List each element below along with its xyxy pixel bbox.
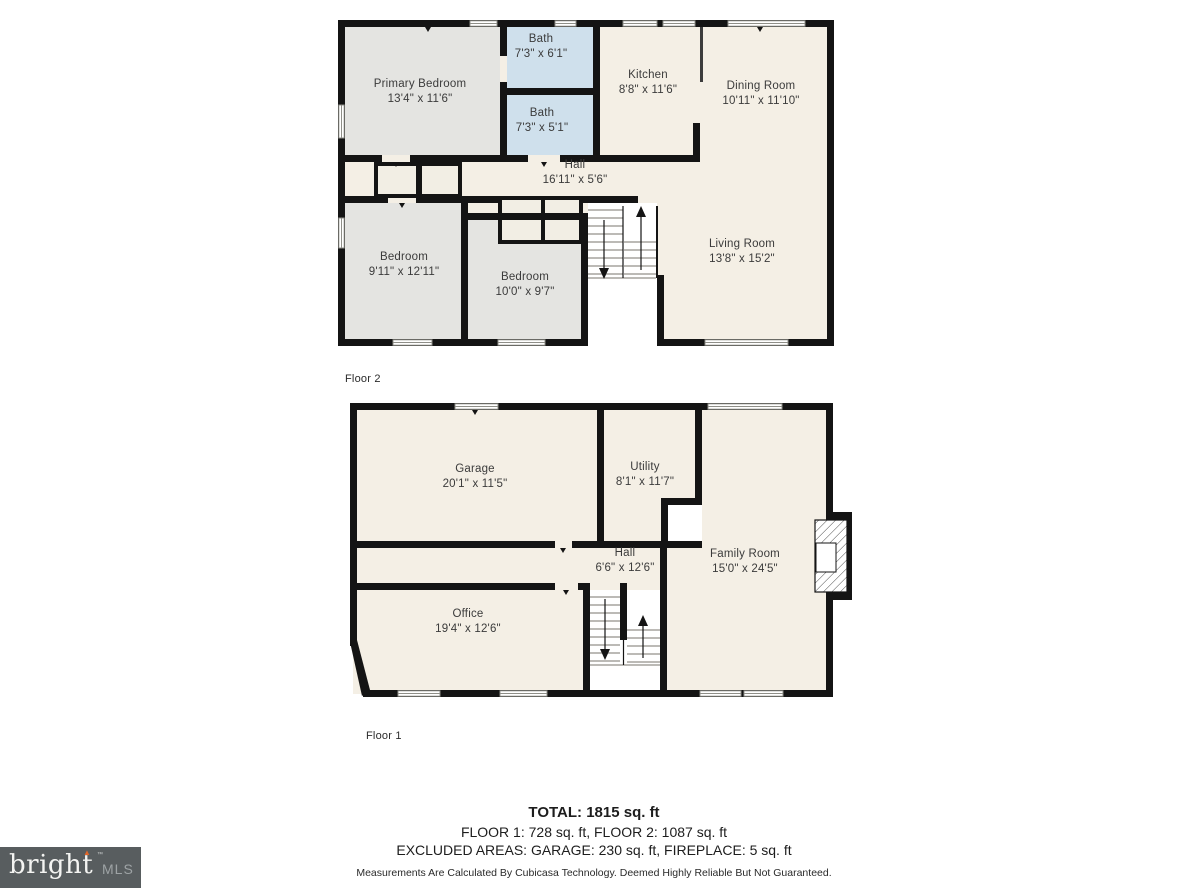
room-label-bedroom-right: Bedroom 10'0" x 9'7" bbox=[495, 270, 554, 300]
floor-areas-text: FLOOR 1: 728 sq. ft, FLOOR 2: 1087 sq. f… bbox=[0, 824, 1188, 840]
logo-brand-text: bright bbox=[9, 850, 93, 880]
floor1-tag: Floor 1 bbox=[366, 730, 402, 742]
logo-suffix-text: MLS bbox=[102, 861, 134, 877]
room-label-office: Office 19'4" x 12'6" bbox=[435, 607, 501, 637]
floor1-plan: Garage 20'1" x 11'5" Utility 8'1" x 11'7… bbox=[350, 403, 855, 701]
room-label-hall-floor1: Hall 6'6" x 12'6" bbox=[595, 546, 654, 576]
room-label-family-room: Family Room 15'0" x 24'5" bbox=[710, 547, 780, 577]
fireplace bbox=[815, 512, 852, 600]
logo-flame-icon: ▲ bbox=[83, 848, 91, 857]
room-label-dining-room: Dining Room 10'11" x 11'10" bbox=[722, 79, 799, 109]
total-area-text: TOTAL: 1815 sq. ft bbox=[0, 804, 1188, 821]
room-label-bedroom-left: Bedroom 9'11" x 12'11" bbox=[369, 250, 440, 280]
room-label-garage: Garage 20'1" x 11'5" bbox=[443, 462, 508, 492]
brightmls-logo: bright ▲ ™ MLS bbox=[0, 847, 141, 888]
room-label-living-room: Living Room 13'8" x 15'2" bbox=[709, 237, 775, 267]
floorplan-page: Primary Bedroom 13'4" x 11'6" Bath 7'3" … bbox=[0, 0, 1188, 888]
room-label-hall-floor2: Hall 16'11" x 5'6" bbox=[543, 158, 608, 188]
disclaimer-text: Measurements Are Calculated By Cubicasa … bbox=[0, 867, 1188, 879]
area-summary: TOTAL: 1815 sq. ft FLOOR 1: 728 sq. ft, … bbox=[0, 804, 1188, 879]
room-label-bath-bottom: Bath 7'3" x 5'1" bbox=[516, 106, 568, 136]
room-label-utility: Utility 8'1" x 11'7" bbox=[616, 460, 674, 490]
room-label-bath-top: Bath 7'3" x 6'1" bbox=[515, 32, 567, 62]
room-label-kitchen: Kitchen 8'8" x 11'6" bbox=[619, 68, 677, 98]
room-label-primary-bedroom: Primary Bedroom 13'4" x 11'6" bbox=[374, 77, 466, 107]
floor2-plan: Primary Bedroom 13'4" x 11'6" Bath 7'3" … bbox=[338, 20, 834, 346]
floor2-tag: Floor 2 bbox=[345, 373, 381, 385]
logo-tm-mark: ™ bbox=[97, 852, 103, 858]
excluded-areas-text: EXCLUDED AREAS: GARAGE: 230 sq. ft, FIRE… bbox=[0, 842, 1188, 858]
